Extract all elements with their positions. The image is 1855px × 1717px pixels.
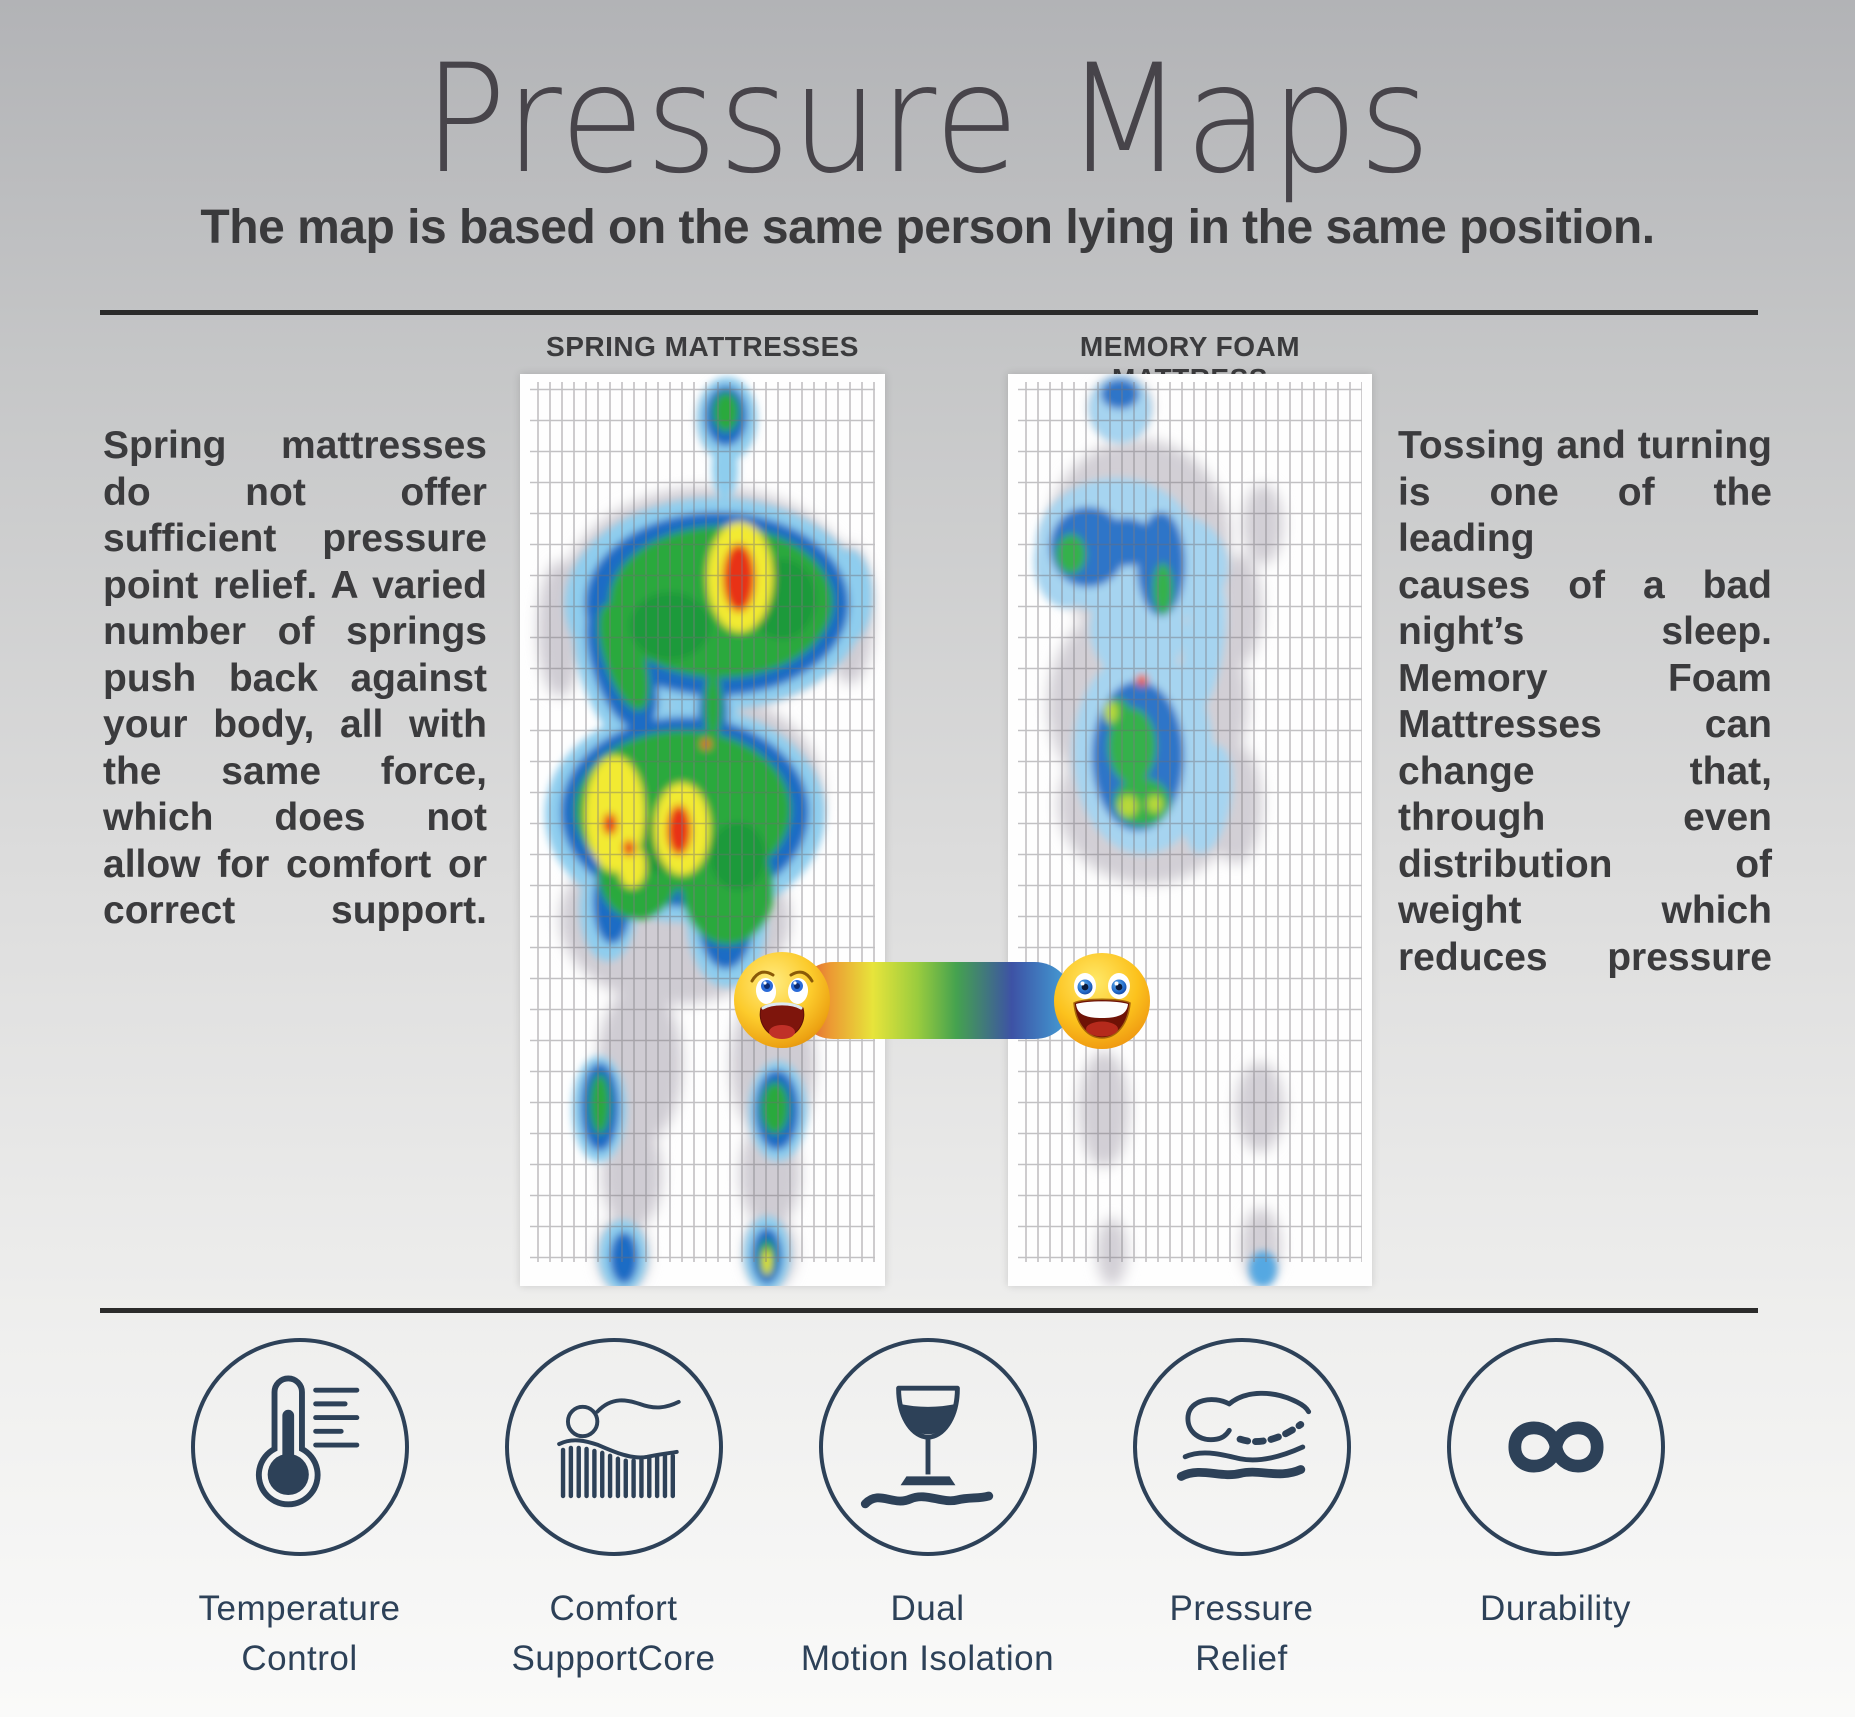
feature-circle: [191, 1338, 409, 1556]
feature-label-pressure-relief: Pressure Relief: [1169, 1584, 1313, 1684]
spring-description: Spring mattressesdo not offersufficient …: [103, 423, 487, 935]
wine-glass-icon: [830, 1349, 1026, 1545]
spring-map-header: SPRING MATTRESSES: [520, 331, 885, 363]
spring-pressure-map-graphic: [520, 374, 885, 1286]
anguished-face-emoji: [732, 950, 832, 1050]
feature-label-dual-motion-isolation: Dual Motion Isolation: [801, 1584, 1054, 1684]
memory-pressure-map-graphic: [1008, 374, 1372, 1286]
spring-grid-overlay: [530, 382, 875, 1262]
feature-label-durability: Durability: [1480, 1584, 1631, 1634]
thermometer-icon: [202, 1349, 398, 1545]
infinity-icon: [1458, 1349, 1654, 1545]
feature-circle: [1133, 1338, 1351, 1556]
feature-circle: [505, 1338, 723, 1556]
features-row: Temperature Control: [0, 1338, 1855, 1684]
feature-dual-motion-isolation: Dual Motion Isolation: [778, 1338, 1078, 1684]
bottom-divider: [100, 1308, 1758, 1313]
memory-pressure-map: [1008, 374, 1372, 1286]
feature-label-comfort-supportcore: Comfort SupportCore: [512, 1584, 716, 1684]
feature-pressure-relief: Pressure Relief: [1092, 1338, 1392, 1684]
feature-circle: [1447, 1338, 1665, 1556]
feature-label-temperature-control: Temperature Control: [199, 1584, 401, 1684]
feature-durability: Durability: [1406, 1338, 1706, 1684]
pressure-scale-bar: [795, 962, 1073, 1039]
feature-comfort-supportcore: Comfort SupportCore: [464, 1338, 764, 1684]
memory-grid-overlay: [1018, 382, 1362, 1262]
memory-description: Tossing and turningis one of the leading…: [1398, 423, 1772, 981]
spring-pressure-map: [520, 374, 885, 1286]
feature-temperature-control: Temperature Control: [150, 1338, 450, 1684]
top-divider: [100, 310, 1758, 315]
pressure-maps-infographic: Pressure Maps The map is based on the sa…: [0, 0, 1855, 1717]
page-title: Pressure Maps: [74, 38, 1781, 203]
page-subtitle: The map is based on the same person lyin…: [0, 200, 1855, 255]
spring-support-icon: [516, 1349, 712, 1545]
pressure-contour-icon: [1144, 1349, 1340, 1545]
feature-circle: [819, 1338, 1037, 1556]
grinning-face-emoji: [1052, 951, 1152, 1051]
